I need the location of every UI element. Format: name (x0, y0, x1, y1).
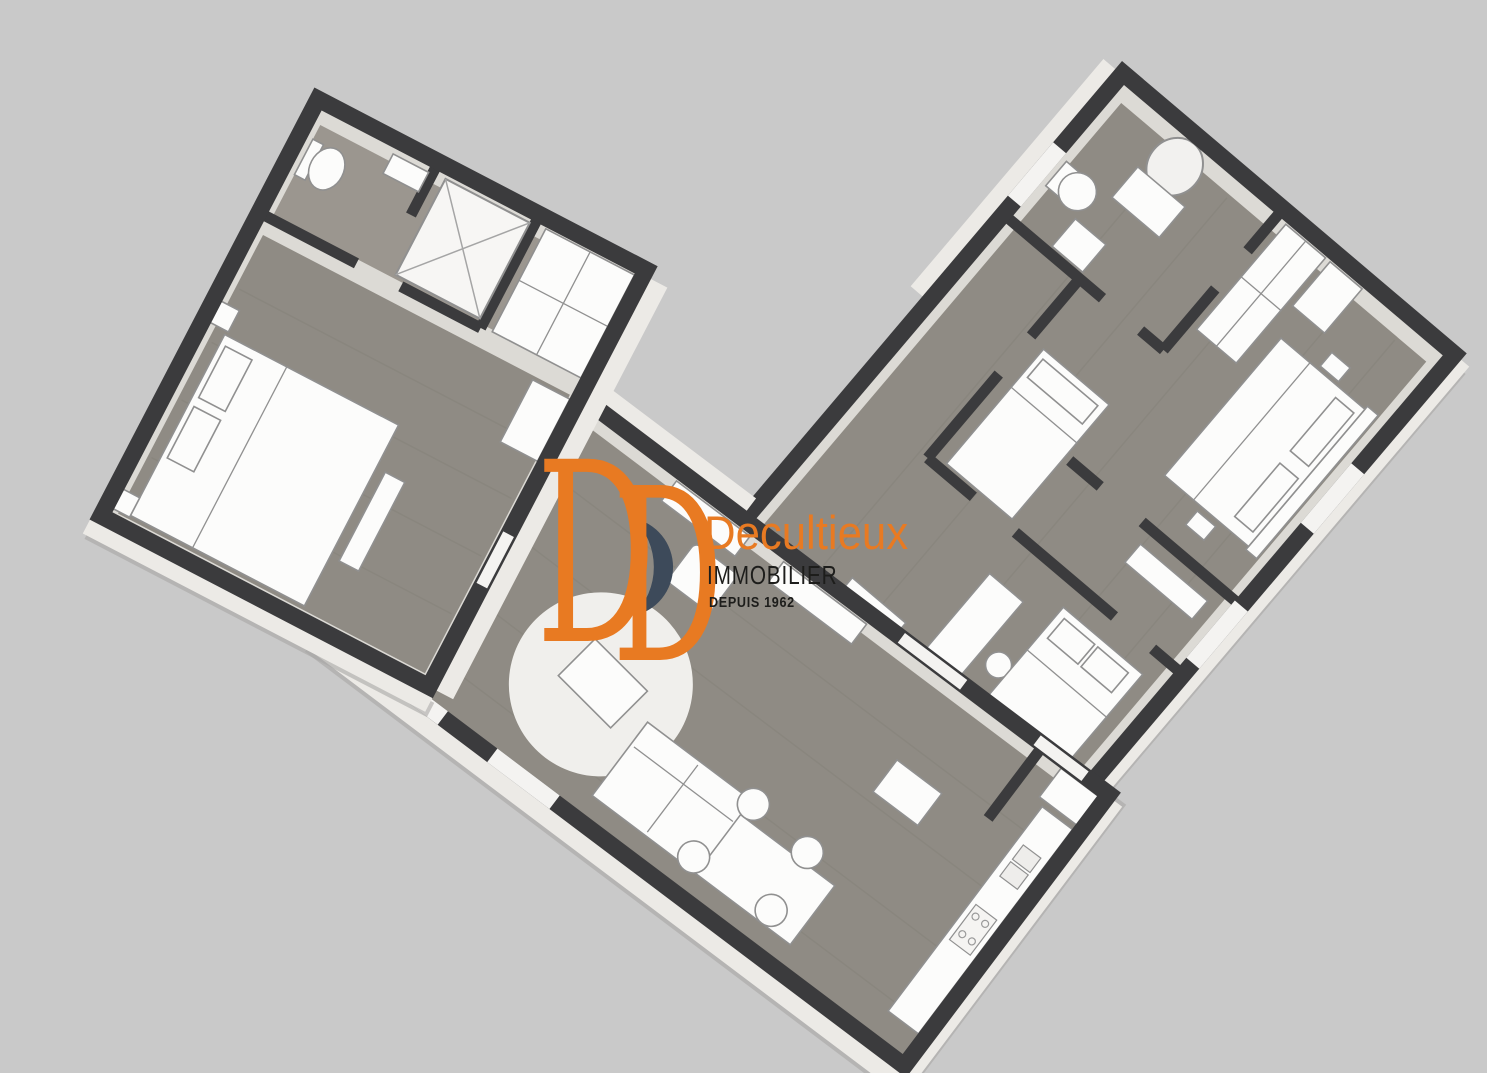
logo-monogram: D D (536, 409, 724, 717)
logo-company-name: Decultieux (704, 509, 908, 556)
logo-sector: IMMOBILIER (707, 562, 838, 588)
logo-since: DEPUIS 1962 (709, 595, 795, 610)
floorplan-scene: D D Decultieux IMMOBILIER DEPUIS 1962 (0, 0, 1487, 1073)
